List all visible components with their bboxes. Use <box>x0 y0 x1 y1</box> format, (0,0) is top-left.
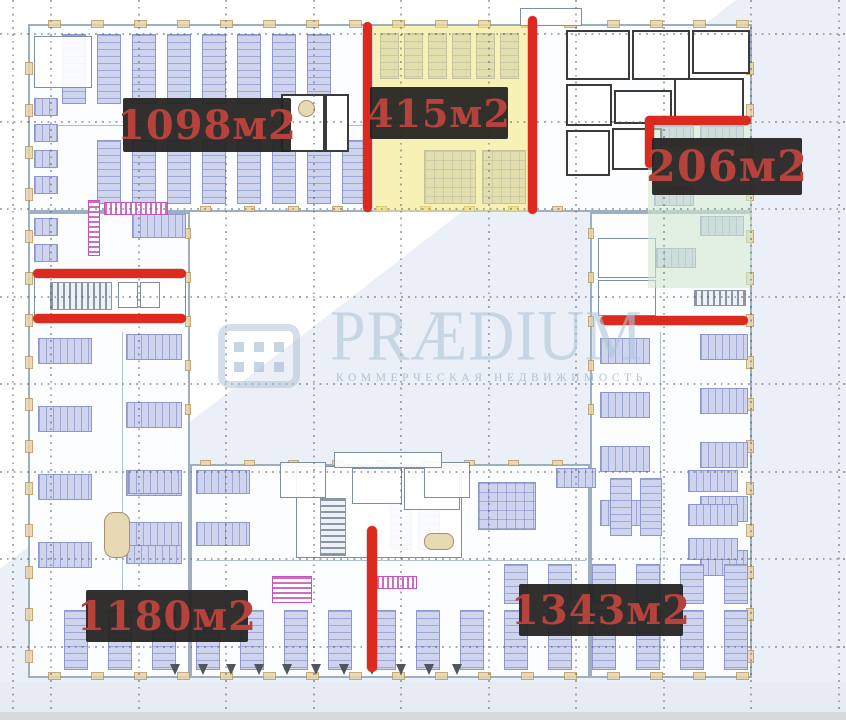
facade-window-tick <box>91 672 104 680</box>
facade-window-tick <box>263 672 276 680</box>
red-boundary-mark <box>600 316 748 325</box>
stair-hatch <box>694 290 746 306</box>
floorplan-canvas: PRÆDIUM КОММЕРЧЕСКАЯ НЕДВИЖИМОСТЬ 1098м2… <box>0 0 846 720</box>
entrance-canopy <box>198 664 208 675</box>
desk-cluster <box>460 610 484 670</box>
desk-cluster <box>724 564 748 604</box>
meeting-table <box>104 512 130 558</box>
entrance-canopy <box>452 664 462 675</box>
desk-cluster <box>38 338 92 364</box>
facade-window-tick <box>588 272 594 283</box>
desk-cluster <box>328 610 352 670</box>
facade-window-tick <box>693 20 706 28</box>
entrance-canopy <box>339 664 349 675</box>
grid-dotted-line <box>313 0 315 710</box>
facade-window-tick <box>508 460 519 466</box>
grid-dotted-line <box>0 383 846 385</box>
desk-cluster <box>34 218 58 236</box>
area-label-1180: 1180м2 <box>86 590 248 642</box>
entrance-canopy <box>424 664 434 675</box>
cabinet-counter <box>272 576 312 603</box>
red-boundary-mark <box>33 314 186 323</box>
facade-window-tick <box>588 316 594 327</box>
area-label-415: 415м2 <box>370 87 508 139</box>
desk-cluster <box>202 34 226 104</box>
facade-window-tick <box>185 404 191 415</box>
desk-cluster <box>196 470 250 494</box>
facade-window-tick <box>91 20 104 28</box>
technical-room <box>325 94 349 152</box>
area-label-text: 1180м2 <box>77 593 257 640</box>
cabinet-counter <box>371 576 417 589</box>
entrance-canopy <box>254 664 264 675</box>
facade-window-tick <box>349 20 362 28</box>
facade-window-tick <box>736 672 749 680</box>
room <box>334 452 442 468</box>
desk-cluster <box>126 334 182 360</box>
grid-dotted-line <box>12 0 14 710</box>
facade-window-tick <box>25 314 33 327</box>
desk-cluster <box>196 522 250 546</box>
facade-window-tick <box>134 20 147 28</box>
desk-cluster <box>97 34 121 104</box>
desk-cluster <box>34 244 58 262</box>
bottom-gray-strip <box>0 712 846 720</box>
facade-window-tick <box>185 360 191 371</box>
entrance-canopy <box>170 664 180 675</box>
facade-window-tick <box>650 672 663 680</box>
grid-dotted-line <box>0 208 846 210</box>
desk-cluster <box>34 176 58 194</box>
desk-cluster <box>688 470 738 492</box>
red-boundary-mark <box>367 526 377 672</box>
facade-window-tick <box>263 20 276 28</box>
desk-cluster <box>38 474 92 500</box>
facade-window-tick <box>25 398 33 411</box>
desk-cluster <box>416 610 440 670</box>
facade-window-tick <box>349 672 362 680</box>
room <box>352 468 402 504</box>
desk-cluster <box>688 504 738 526</box>
desk-cluster <box>688 538 738 560</box>
partition-wall <box>196 560 586 561</box>
technical-room <box>674 78 744 118</box>
facade-window-tick <box>650 20 663 28</box>
desk-cluster <box>128 522 182 546</box>
facade-window-tick <box>25 62 33 75</box>
facade-window-tick <box>25 146 33 159</box>
area-label-1098: 1098м2 <box>123 98 291 152</box>
facade-window-tick <box>693 672 706 680</box>
desk-cluster <box>34 98 58 116</box>
desk-cluster <box>97 140 121 204</box>
technical-room <box>692 30 750 74</box>
facade-window-tick <box>244 460 255 466</box>
facade-window-tick <box>588 404 594 415</box>
desk-cluster <box>478 482 536 530</box>
entrance-canopy <box>282 664 292 675</box>
desk-cluster <box>700 442 748 468</box>
facade-window-tick <box>25 608 33 621</box>
facade-window-tick <box>552 460 563 466</box>
red-boundary-mark <box>645 116 751 125</box>
technical-room <box>566 130 610 176</box>
meeting-table <box>424 533 454 550</box>
desk-cluster <box>700 388 748 414</box>
facade-window-tick <box>25 440 33 453</box>
facade-window-tick <box>25 230 33 243</box>
facade-window-tick <box>200 460 211 466</box>
grid-dotted-line <box>750 0 752 710</box>
desk-cluster <box>640 478 662 536</box>
facade-window-tick <box>25 524 33 537</box>
desk-cluster <box>34 150 58 168</box>
facade-window-tick <box>435 672 448 680</box>
desk-cluster <box>34 124 58 142</box>
grid-dotted-line <box>838 0 840 710</box>
desk-cluster <box>700 334 748 360</box>
room <box>280 462 326 498</box>
desk-cluster <box>38 542 92 568</box>
facade-window-tick <box>25 356 33 369</box>
desk-cluster <box>237 34 261 104</box>
entrance-canopy <box>226 664 236 675</box>
area-label-1343: 1343м2 <box>519 584 683 636</box>
room <box>140 282 160 308</box>
facade-window-tick <box>25 272 33 285</box>
desk-cluster <box>610 478 632 536</box>
facade-window-tick <box>588 228 594 239</box>
desk-cluster <box>284 610 308 670</box>
facade-window-tick <box>736 20 749 28</box>
area-label-206: 206м2 <box>652 138 802 195</box>
desk-cluster <box>132 214 186 238</box>
desk-cluster <box>167 34 191 104</box>
facade-window-tick <box>25 566 33 579</box>
desk-cluster <box>600 338 650 364</box>
grid-dotted-line <box>0 471 846 473</box>
room <box>34 36 92 88</box>
background-bottom-band <box>0 682 846 712</box>
technical-room <box>632 30 690 80</box>
area-label-text: 1098м2 <box>117 102 297 149</box>
area-label-text: 1343м2 <box>511 587 691 634</box>
facade-window-tick <box>177 20 190 28</box>
facade-window-tick <box>25 104 33 117</box>
grid-dotted-line <box>0 558 846 560</box>
grid-dotted-line <box>50 0 52 710</box>
desk-cluster <box>724 610 748 670</box>
facade-window-tick <box>25 188 33 201</box>
desk-cluster <box>38 406 92 432</box>
grid-dotted-line <box>0 646 846 648</box>
facade-window-tick <box>25 482 33 495</box>
technical-room <box>566 84 612 126</box>
area-label-text: 206м2 <box>646 142 808 192</box>
desk-cluster <box>128 470 182 494</box>
facade-window-tick <box>607 672 620 680</box>
room <box>118 282 138 308</box>
desk-cluster <box>600 446 650 472</box>
grid-dotted-line <box>0 296 846 298</box>
area-label-text: 415м2 <box>367 91 511 136</box>
stair-hatch <box>320 498 346 556</box>
facade-window-tick <box>588 360 594 371</box>
desk-cluster <box>600 392 650 418</box>
red-boundary-mark <box>528 16 537 214</box>
grid-dotted-line <box>0 33 846 35</box>
facade-window-tick <box>521 672 534 680</box>
desk-cluster <box>126 402 182 428</box>
facade-window-tick <box>25 650 33 663</box>
red-boundary-mark <box>33 269 186 278</box>
facade-window-tick <box>607 20 620 28</box>
facade-window-tick <box>134 672 147 680</box>
desk-cluster <box>132 34 156 104</box>
